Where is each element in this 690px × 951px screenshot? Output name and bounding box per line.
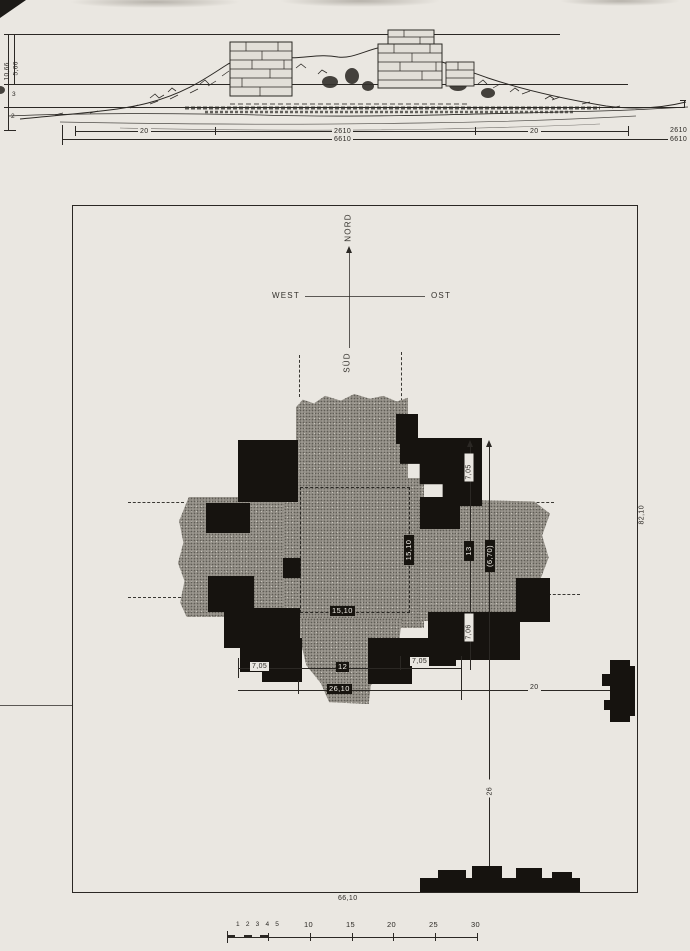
h-dim-east-offset: 20 xyxy=(528,683,541,692)
east-wall-fragment-step xyxy=(602,674,610,686)
compass-ew-line xyxy=(305,296,425,297)
south-wall-fragment-step xyxy=(552,872,572,880)
scale-label-20: 20 xyxy=(387,920,396,929)
plan-wall-east-end xyxy=(516,578,550,622)
scale-label-25: 25 xyxy=(429,920,438,929)
axis-dash xyxy=(548,594,580,595)
h-dim-center: 12 xyxy=(336,662,349,672)
east-wall-fragment xyxy=(610,660,630,722)
v-dim-line-long xyxy=(489,443,490,892)
h-dim-right: 7,05 xyxy=(410,657,429,666)
dim-tick xyxy=(298,680,299,694)
elevation-dim-20-left: 20 xyxy=(138,127,151,136)
scale-bar: 1 2 3 4 5 10 15 20 25 30 xyxy=(222,918,492,946)
elevation-dim-6610: 6610 xyxy=(332,135,353,144)
compass-east-label: OST xyxy=(431,291,451,300)
compass-west-label: WEST xyxy=(272,291,300,300)
elevation-dim-2610-edge: 2610 xyxy=(668,126,689,135)
south-wall-fragment xyxy=(420,878,580,892)
h-dim-line-1 xyxy=(238,668,461,669)
south-wall-fragment-step xyxy=(516,868,542,880)
v-dim-arrow-icon xyxy=(467,440,473,447)
south-wall-fragment-step xyxy=(472,866,502,880)
scale-label-10: 10 xyxy=(304,920,313,929)
v-dim-mid-paren: (6,70) xyxy=(485,540,495,572)
dim-tick xyxy=(238,658,239,678)
axis-dash xyxy=(128,502,184,503)
south-wall-fragment-step xyxy=(438,870,466,880)
v-dim-lower: 26 xyxy=(486,780,495,798)
elevation-view: 10,66 5,66 3 2 xyxy=(0,0,690,160)
elevation-dim-20-right: 20 xyxy=(528,127,541,136)
plan-wall-northwest xyxy=(238,440,298,502)
east-wall-fragment-step xyxy=(604,700,610,710)
plan-fill-north-arm xyxy=(296,394,408,488)
dim-tick xyxy=(475,127,476,135)
compass-north-arrow-icon xyxy=(346,246,352,253)
dim-tick xyxy=(62,125,63,145)
dim-tick xyxy=(400,656,401,670)
plan-wall-northeast-step xyxy=(396,414,418,444)
compass-south-label: SÜD xyxy=(343,350,352,376)
v-dim-arrow-icon xyxy=(486,440,492,447)
scale-label-15: 15 xyxy=(346,920,355,929)
elevation-dim-6610-edge: 6610 xyxy=(668,135,689,144)
plan-wall-center-notch xyxy=(283,558,301,578)
dim-tick xyxy=(215,127,216,135)
h-dim-left: 7,05 xyxy=(250,662,269,671)
v-dim-mid: 13 xyxy=(464,541,474,561)
elevation-dim-line-2 xyxy=(62,139,688,140)
axis-dash xyxy=(299,355,300,397)
scale-minor-labels: 1 2 3 4 5 xyxy=(236,921,281,928)
scale-label-30: 30 xyxy=(471,920,480,929)
east-wall-fragment-step xyxy=(630,666,635,716)
dim-tick xyxy=(75,126,76,136)
scanned-survey-sheet: 10,66 5,66 3 2 xyxy=(0,0,690,951)
plan-wall-west-upper xyxy=(206,503,250,533)
dim-tick xyxy=(461,656,462,700)
scan-fold-line xyxy=(0,705,72,706)
inner-square-dim-bottom: 15,10 xyxy=(330,606,355,616)
h-dim-line-2 xyxy=(238,690,613,691)
v-dim-bottom: 7,06 xyxy=(465,614,474,642)
compass-ns-line xyxy=(349,253,350,348)
dim-tick xyxy=(628,126,629,136)
inner-square-dim-right: 15,10 xyxy=(404,535,414,565)
sheet-height-dim: 82,10 xyxy=(638,493,647,527)
v-dim-top: 7,05 xyxy=(465,454,474,482)
sheet-width-dim: 66,10 xyxy=(336,894,360,903)
h-dim-total: 26,10 xyxy=(327,684,352,694)
plan-wall-west-lower xyxy=(208,576,254,612)
plan-inner-square xyxy=(300,487,410,613)
compass-north-label: NORD xyxy=(344,211,353,245)
plan-wall-east-upper xyxy=(420,497,460,529)
plan-wall-south-right-step xyxy=(368,660,412,684)
